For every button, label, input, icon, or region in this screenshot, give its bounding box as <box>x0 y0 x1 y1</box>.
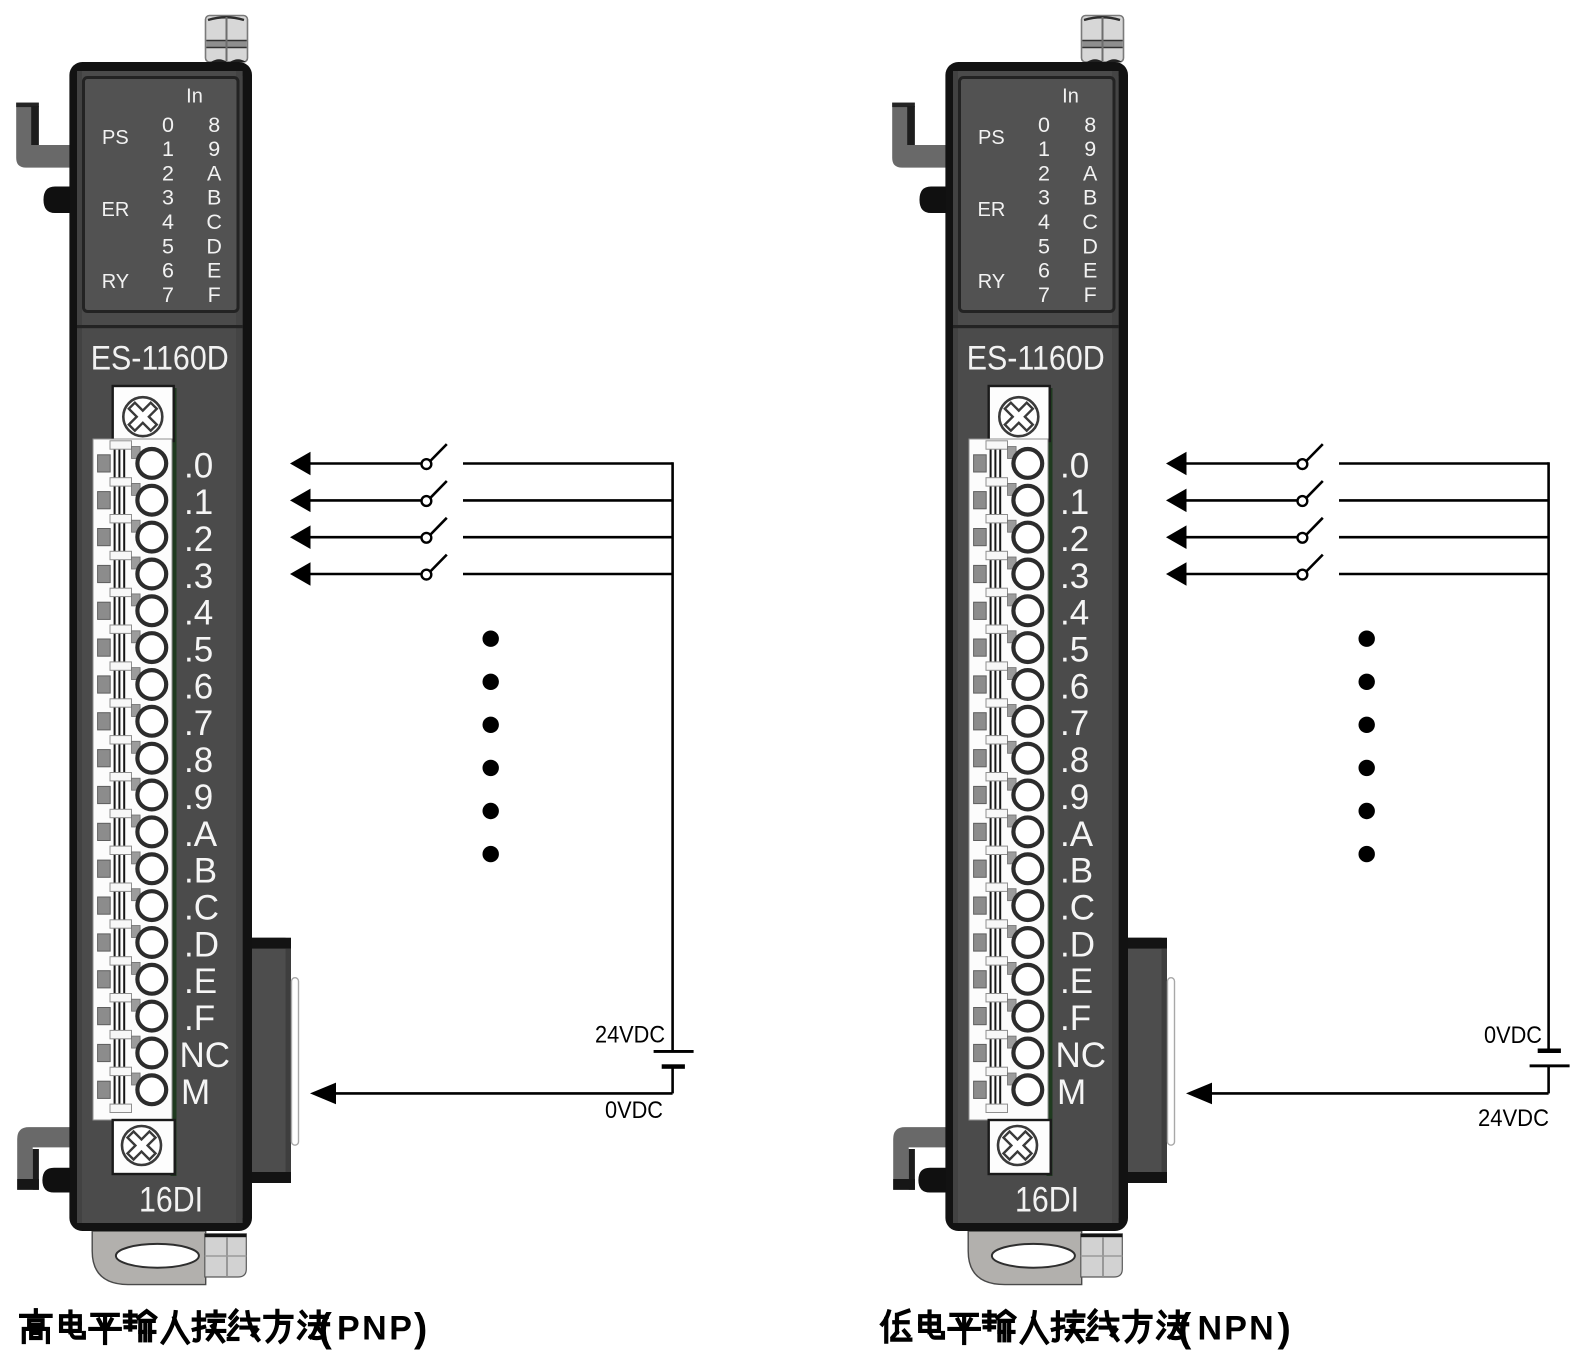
svg-text:PNP: PNP <box>337 1310 414 1348</box>
svg-text:): ) <box>414 1306 427 1350</box>
svg-text:24VDC: 24VDC <box>595 1022 665 1049</box>
svg-text:(: ( <box>319 1306 333 1350</box>
svg-text:0VDC: 0VDC <box>605 1097 663 1124</box>
svg-text:): ) <box>1278 1306 1291 1350</box>
svg-text:24VDC: 24VDC <box>1478 1105 1549 1132</box>
svg-text:(: ( <box>1178 1306 1192 1350</box>
svg-text:NPN: NPN <box>1198 1310 1276 1348</box>
svg-text:0VDC: 0VDC <box>1484 1022 1542 1049</box>
